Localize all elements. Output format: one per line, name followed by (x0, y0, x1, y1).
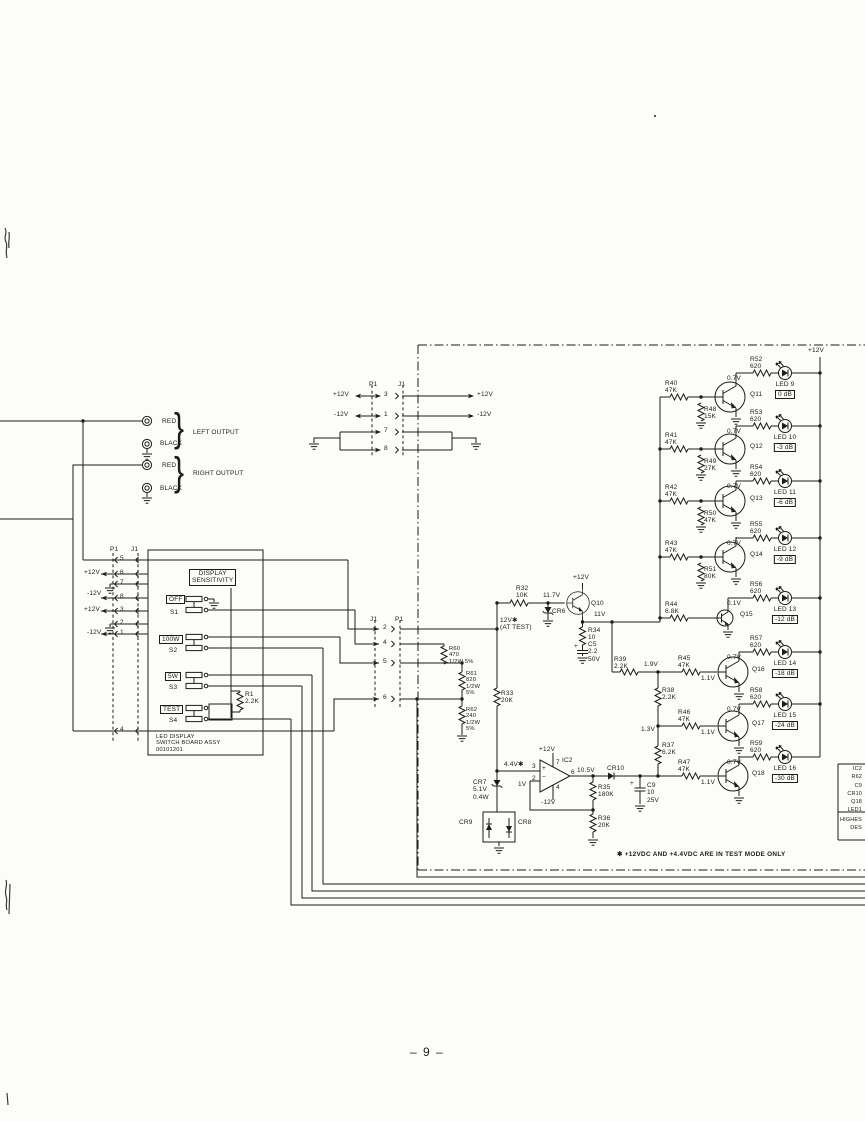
switch-s2-ref: S2 (169, 647, 177, 654)
cr6-label: CR6 (552, 608, 565, 615)
schematic-canvas (0, 0, 865, 1122)
top-pin3-left-rail: +12V (333, 391, 349, 398)
q17-vc-label: 0.7V (727, 706, 741, 713)
board-p1: P1 (110, 546, 118, 553)
r55-label: R55 620 (750, 521, 762, 536)
r61-label: R61 820 1/2W 5% (466, 671, 480, 697)
q17-vb-label: 1.1V (701, 729, 715, 736)
opamp-vout-label: 10.5V (577, 767, 595, 774)
led11-db-badge: -6 dB (774, 498, 796, 507)
led13-label: LED 13 (774, 606, 797, 613)
board-pin4: 4 (120, 726, 124, 733)
r54-label: R54 620 (750, 464, 762, 479)
top-connector-symbols (309, 393, 481, 453)
right-output-label: RIGHT OUTPUT (193, 470, 243, 477)
r50-label: R50 47K (704, 510, 716, 525)
opamp-symbols (486, 769, 646, 853)
top-pin1: 1 (384, 411, 388, 418)
opamp-pin7: 7 (556, 759, 560, 766)
test-switch-outline (209, 704, 232, 720)
q12-vc-label: 0.7V (727, 428, 741, 435)
cr8-label: CR8 (518, 819, 531, 826)
opamp-vin-label: 4.4V✱ (504, 761, 524, 768)
board-pin2: 2 (120, 619, 124, 626)
board-pin7: 7 (120, 579, 124, 586)
q18-vc-label: 0.7V (727, 759, 741, 766)
r36-label: R36 20K (598, 815, 610, 830)
left-output-label: LEFT OUTPUT (193, 429, 239, 436)
board-pin5: 5 (120, 555, 124, 562)
led9-label: LED 9 (776, 381, 795, 388)
led10-db-badge: -3 dB (774, 443, 796, 452)
switch-off-label: OFF (166, 595, 185, 604)
node-11v-label: 11V (594, 611, 606, 618)
led15-db-badge: -24 dB (772, 721, 798, 730)
q18-vb-label: 1.1V (701, 779, 715, 786)
r49-label: R49 27K (704, 458, 716, 473)
q14-label: Q14 (750, 551, 763, 558)
r60-label: R60 470 1/2W 5% (449, 646, 474, 665)
board-rail-p6: +12V (84, 569, 100, 576)
led10-label: LED 10 (774, 434, 797, 441)
mid-pin6: 6 (383, 694, 387, 701)
c5-polarity: + (574, 643, 578, 650)
led12-db-badge: -9 dB (774, 555, 796, 564)
switch-symbols (186, 596, 243, 721)
r34-label: R34 10 (588, 627, 600, 642)
node-11v7-label: 11.7V (543, 592, 560, 599)
rail-12v-label: +12V (808, 347, 824, 354)
q16-label: Q16 (752, 666, 765, 673)
led14-label: LED 14 (774, 660, 797, 667)
stage-symbols (670, 362, 822, 804)
r33-label: R33 20K (501, 690, 513, 705)
switch-s3-ref: S3 (169, 684, 177, 691)
r43-label: R43 47K (665, 540, 677, 555)
r41-label: R41 47K (665, 432, 677, 447)
opamp-ref: IC2 (562, 757, 573, 764)
r57-label: R57 620 (750, 635, 762, 650)
opamp-pin6: 6 (571, 769, 575, 776)
top-pin7: 7 (384, 427, 388, 434)
r37-label: R37 6.2K (662, 742, 676, 757)
q16-vc-label: 0.7V (727, 654, 741, 661)
mid-connector-j1: J1 (370, 616, 377, 623)
q13-label: Q13 (750, 495, 763, 502)
top-pin3-right-rail: +12V (477, 391, 493, 398)
left-output-brace: } (174, 408, 184, 448)
switch-100w-label: 100W (159, 635, 183, 644)
r53-label: R53 620 (750, 409, 762, 424)
r48-label: R48 15K (704, 406, 716, 421)
top-connector-p1: P1 (369, 381, 377, 388)
q12-label: Q12 (750, 443, 763, 450)
board-caption: LED DISPLAY SWITCH BOARD ASSY 00101201 (156, 734, 220, 753)
opamp-vfb-label: 1V (518, 781, 526, 788)
board-rail-p1: -12V (87, 629, 101, 636)
board-pin1: 1 (120, 629, 124, 636)
ink-speck (654, 115, 656, 117)
q14-vc-label: 0.7V (727, 540, 741, 547)
cr7-label: CR7 5.1V 0.4W (473, 779, 489, 801)
r1-label: R1 2.2K (245, 691, 259, 706)
led16-label: LED 16 (774, 765, 797, 772)
led11-label: LED 11 (774, 489, 796, 496)
board-pin3: 3 (120, 606, 124, 613)
led13-db-badge: -12 dB (772, 615, 798, 624)
q15-vc-label: 0.1V (727, 600, 741, 607)
led14-db-badge: -18 dB (772, 669, 798, 678)
switch-s4-ref: S4 (169, 717, 177, 724)
board-rail-p8: -12V (87, 590, 101, 597)
connector-columns (113, 385, 403, 742)
mid-pin5: 5 (383, 658, 387, 665)
q15-label: Q15 (740, 611, 753, 618)
test-voltage-label: 12V✱ (AT TEST) (500, 617, 532, 632)
q17-label: Q17 (752, 720, 765, 727)
display-sensitivity-title: DISPLAY SENSITIVITY (189, 569, 236, 586)
r32-label: R32 10K (516, 585, 528, 600)
right-output-brace: } (174, 452, 184, 492)
switch-s1-ref: S1 (170, 609, 178, 616)
board-pin8: 8 (120, 593, 124, 600)
r52-label: R52 620 (750, 356, 762, 371)
top-pin1-left-rail: -12V (334, 411, 348, 418)
r35-label: R35 180K (598, 784, 614, 799)
q11-label: Q11 (750, 391, 762, 398)
designators-footer: HIGHES DES (840, 816, 862, 833)
mid-pin4: 4 (383, 639, 387, 646)
board-pin6: 6 (120, 569, 124, 576)
r56-label: R56 620 (750, 581, 762, 596)
opamp-vp-label: +12V (539, 746, 555, 753)
board-rail-p3: +12V (84, 606, 100, 613)
cr10-label: CR10 (607, 765, 624, 772)
top-pin1-right-rail: -12V (477, 411, 491, 418)
r58-label: R58 620 (750, 687, 762, 702)
led16-db-badge: -30 dB (772, 774, 798, 783)
r45-label: R45 47K (678, 655, 690, 670)
r39-label: R39 2.2K (614, 656, 628, 671)
test-mode-note: ✱ +12VDC AND +4.4VDC ARE IN TEST MODE ON… (617, 851, 786, 858)
cr9-label: CR9 (459, 819, 472, 826)
r40-label: R40 47K (665, 380, 677, 395)
c9-polarity: + (630, 780, 634, 787)
mid-connector-p1: P1 (395, 616, 403, 623)
q18-label: Q18 (752, 770, 765, 777)
q11-vc-label: 0.7V (727, 375, 741, 382)
led12-label: LED 12 (774, 546, 797, 553)
opamp-pin2: 2 (532, 775, 536, 782)
q16-vb-label: 1.1V (701, 675, 715, 682)
c5-label: C5 2.2 50V (588, 641, 600, 663)
r38-label: R38 2.2K (662, 687, 676, 702)
c9-label: C9 10 25V (647, 782, 659, 804)
top-pin8: 8 (384, 445, 388, 452)
wire-network (0, 357, 865, 905)
switch-test-label: TEST (160, 705, 183, 714)
q10-label: Q10 (591, 600, 604, 607)
led15-label: LED 15 (774, 712, 797, 719)
node-1v9-label: 1.9V (644, 661, 658, 668)
led9-db-badge: 0 dB (775, 390, 795, 399)
r51-label: R51 80K (704, 566, 716, 581)
switch-5w-label: 5W (165, 672, 181, 681)
q10-vcc-label: +12V (573, 574, 589, 581)
opamp-pin4: 4 (556, 784, 560, 791)
r59-label: R59 620 (750, 740, 762, 755)
r47-label: R47 47K (678, 759, 690, 774)
node-1v3-label: 1.3V (641, 726, 655, 733)
opamp-minus: − (542, 774, 546, 781)
pen-marks (5, 228, 10, 1105)
schematic-page: RED BLACK } LEFT OUTPUT RED BLACK } RIGH… (0, 0, 865, 1122)
opamp-vn-label: -12V (541, 799, 555, 806)
top-pin3: 3 (384, 391, 388, 398)
r44-label: R44 6.8K (665, 601, 679, 616)
output-terminals (142, 416, 152, 503)
q13-vc-label: 0.7V (727, 483, 741, 490)
opamp-pin3: 3 (532, 763, 536, 770)
r62-label: R62 240 1/2W 5% (466, 707, 480, 733)
page-number: – 9 – (410, 1046, 444, 1059)
r42-label: R42 47K (665, 484, 677, 499)
designators-list: IC2 R62 C9 CR10 Q18 LED1 (840, 765, 862, 815)
top-connector-j1: J1 (398, 381, 405, 388)
r46-label: R46 47K (678, 709, 690, 724)
opamp-plus: + (542, 765, 546, 772)
board-j1: J1 (131, 546, 138, 553)
mid-pin2: 2 (383, 624, 387, 631)
